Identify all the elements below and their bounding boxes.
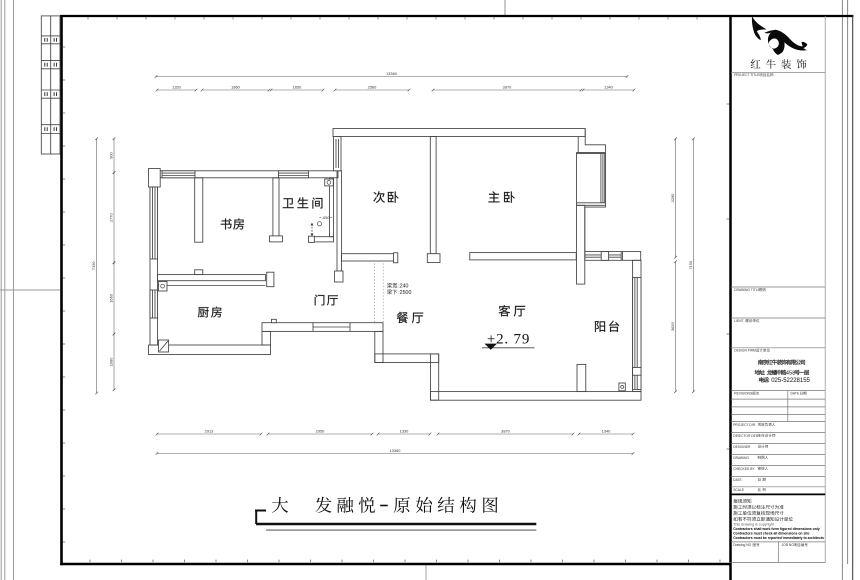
- svg-text:DATE: DATE: [791, 392, 800, 396]
- svg-text:1650: 1650: [293, 84, 302, 89]
- svg-text:Drawing NO: Drawing NO: [733, 543, 751, 547]
- svg-text:DRAWING: DRAWING: [733, 456, 749, 460]
- svg-text:3870: 3870: [501, 428, 510, 433]
- svg-text:CHECKED BY: CHECKED BY: [733, 467, 755, 471]
- svg-text:DESIGNER: DESIGNER: [733, 445, 751, 449]
- svg-text:DIRECTOR DER: DIRECTOR DER: [733, 434, 759, 438]
- svg-text:1340: 1340: [604, 84, 613, 89]
- svg-text:SCALE: SCALE: [733, 488, 745, 492]
- svg-text:13360: 13360: [386, 71, 398, 76]
- svg-text:2770: 2770: [108, 213, 113, 222]
- svg-text:Contractors shall work form fi: Contractors shall work form figured dime…: [733, 527, 820, 531]
- svg-text:Contractors must check all dim: Contractors must check all dimensions on…: [733, 531, 809, 535]
- svg-text:3290: 3290: [670, 193, 675, 202]
- svg-text:1860: 1860: [231, 84, 240, 89]
- svg-text:2560: 2560: [368, 84, 377, 89]
- svg-text:DATE: DATE: [733, 478, 742, 482]
- svg-text:1080: 1080: [108, 357, 113, 366]
- svg-text:REVISIONS: REVISIONS: [734, 392, 753, 396]
- svg-text:DESIGN FIRM: DESIGN FIRM: [734, 349, 756, 353]
- svg-text:3630: 3630: [670, 321, 675, 330]
- svg-text::2500: :2500: [398, 290, 411, 296]
- svg-text:458: 458: [786, 370, 796, 376]
- svg-text:13360: 13360: [390, 448, 402, 453]
- svg-text:1330: 1330: [400, 428, 409, 433]
- svg-text:PROJECT DIR: PROJECT DIR: [733, 423, 756, 427]
- svg-text:025-52228155: 025-52228155: [771, 378, 810, 384]
- svg-text:1320: 1320: [172, 84, 181, 89]
- svg-text:Contractors must be reported i: Contractors must be reported immediately…: [733, 536, 824, 540]
- svg-text:7150: 7150: [91, 261, 96, 270]
- svg-text:1340: 1340: [602, 428, 611, 433]
- svg-text:3970: 3970: [503, 84, 512, 89]
- svg-text:-050: -050: [322, 215, 331, 220]
- svg-text:2950: 2950: [316, 428, 325, 433]
- svg-text::240: :240: [398, 283, 408, 289]
- svg-text:1660: 1660: [108, 293, 113, 302]
- svg-text:LIENT: LIENT: [734, 319, 743, 323]
- svg-text:DRAWING TITLE: DRAWING TITLE: [734, 288, 760, 292]
- svg-text:900: 900: [108, 152, 113, 159]
- svg-text:JOB NO: JOB NO: [782, 543, 795, 547]
- svg-text:2913: 2913: [205, 428, 214, 433]
- svg-text:7150: 7150: [688, 260, 693, 269]
- svg-text:PROJECT TITLE: PROJECT TITLE: [734, 73, 760, 77]
- svg-text:This drawing is copyright: This drawing is copyright: [733, 522, 774, 526]
